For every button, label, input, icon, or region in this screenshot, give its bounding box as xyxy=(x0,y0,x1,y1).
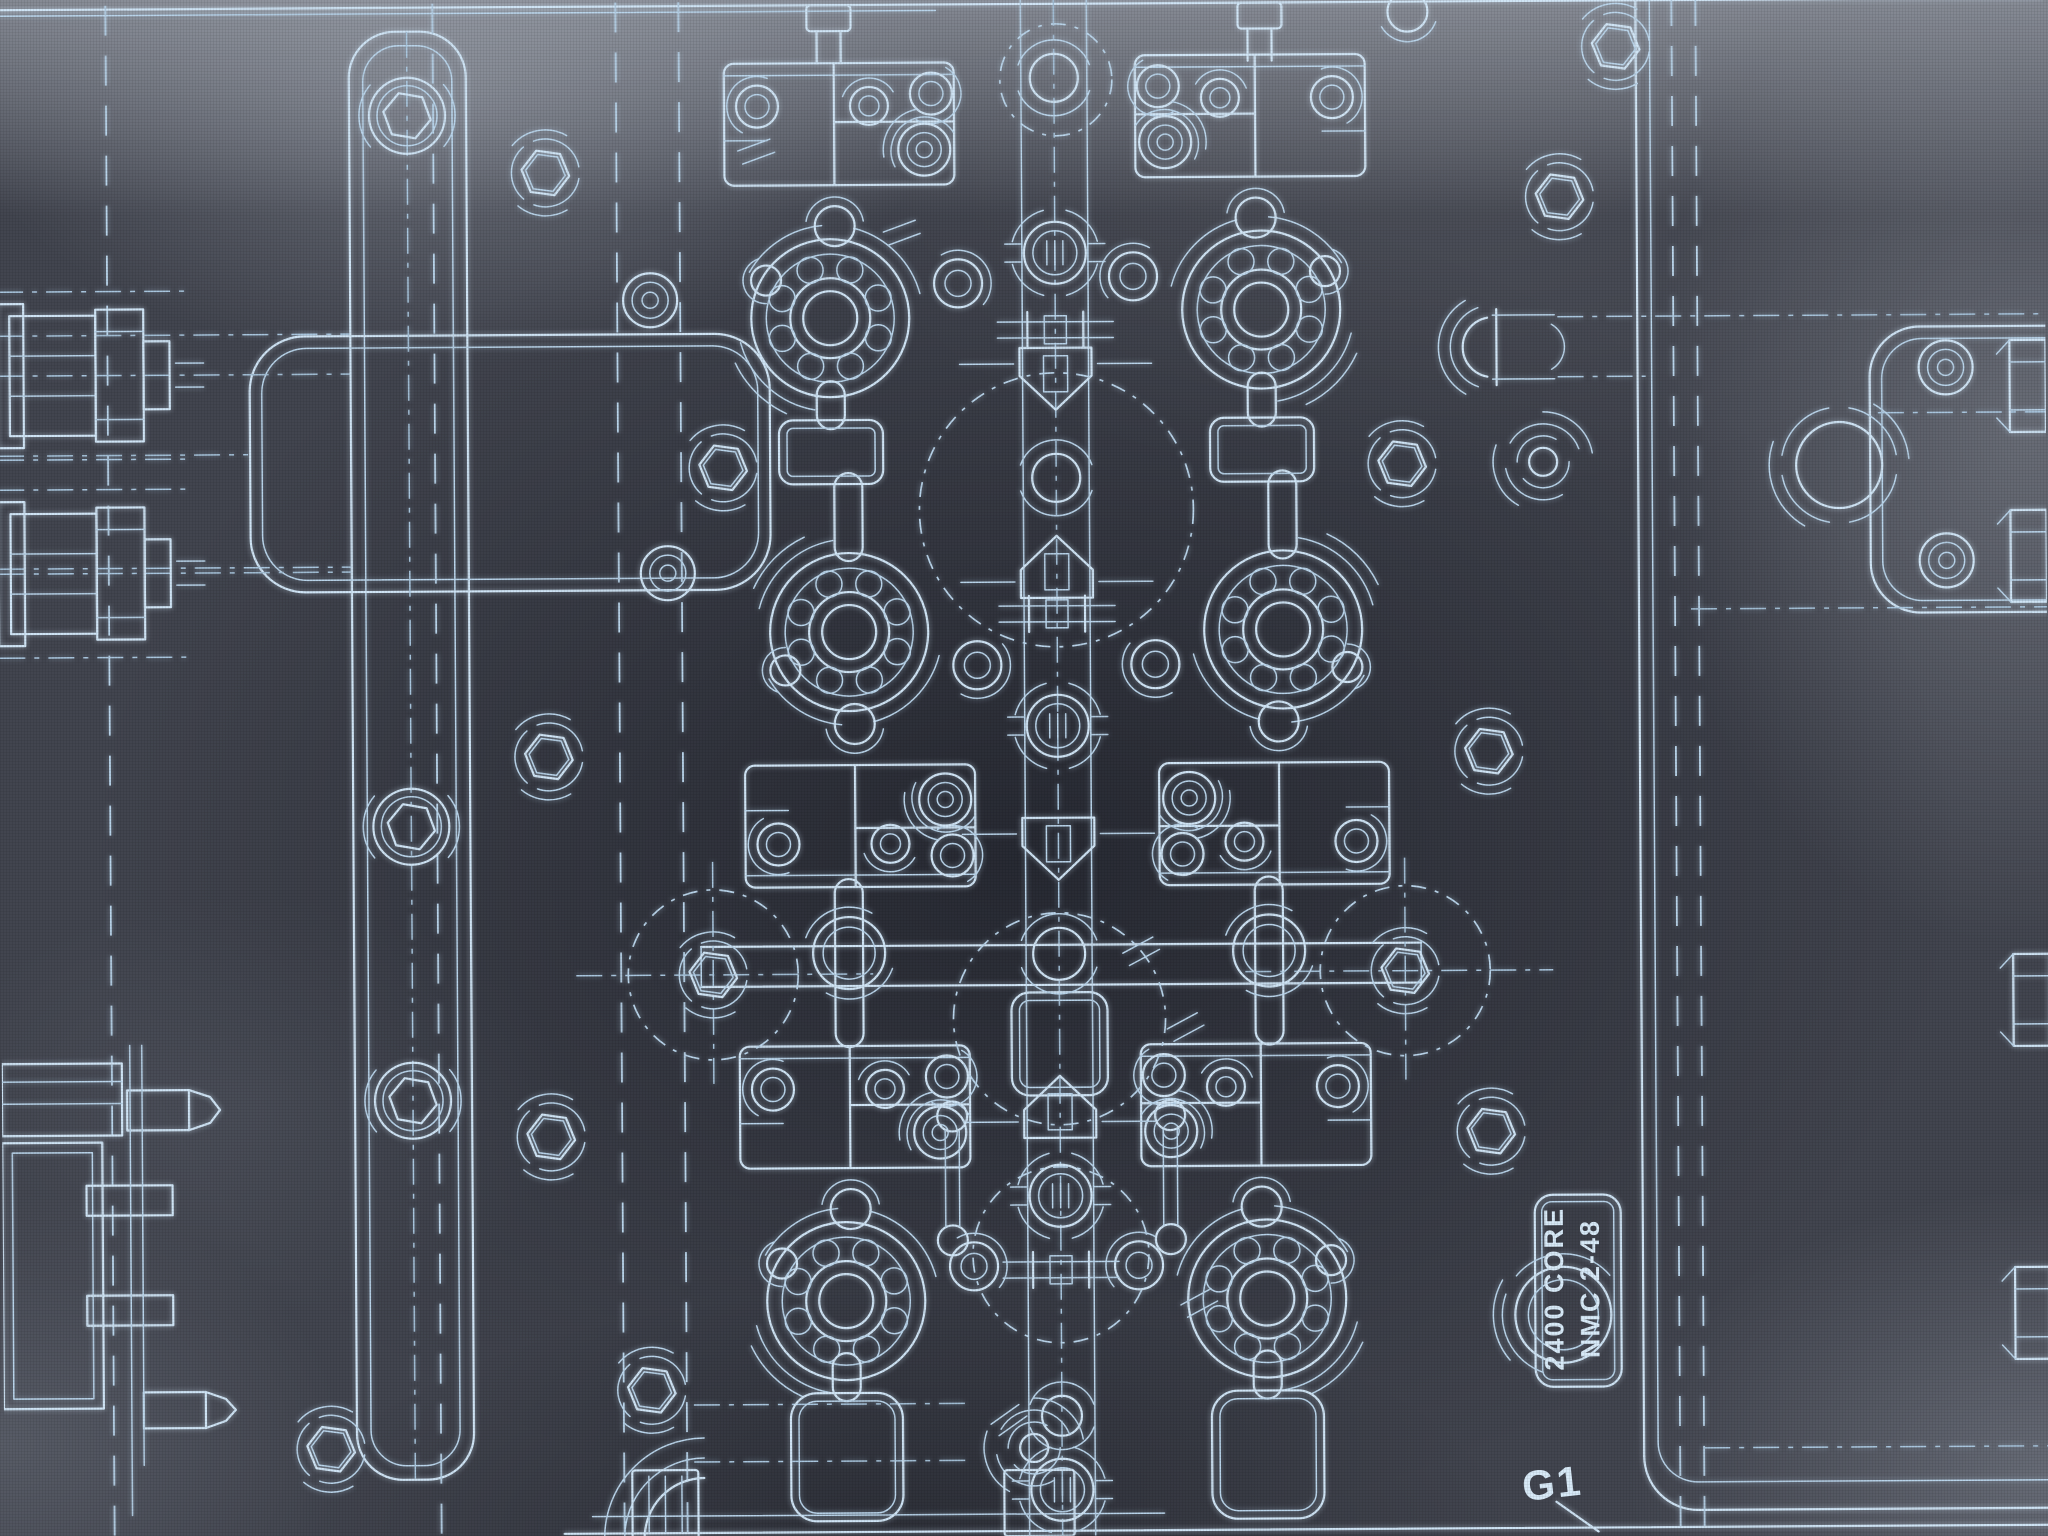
monitor-screen: 2400 CORE NMC 2-48 G1 xyxy=(0,0,2048,1536)
drawing-linework xyxy=(0,0,2048,1536)
part-label-line1: 2400 CORE xyxy=(1539,1207,1570,1371)
gate-label-g1: G1 xyxy=(1520,1457,1585,1510)
cad-drawing-canvas: 2400 CORE NMC 2-48 G1 xyxy=(0,0,2048,1536)
part-label: 2400 CORE NMC 2-48 xyxy=(1539,1207,1606,1371)
linework-glow xyxy=(0,0,2048,1536)
part-label-line2: NMC 2-48 xyxy=(1575,1219,1606,1358)
